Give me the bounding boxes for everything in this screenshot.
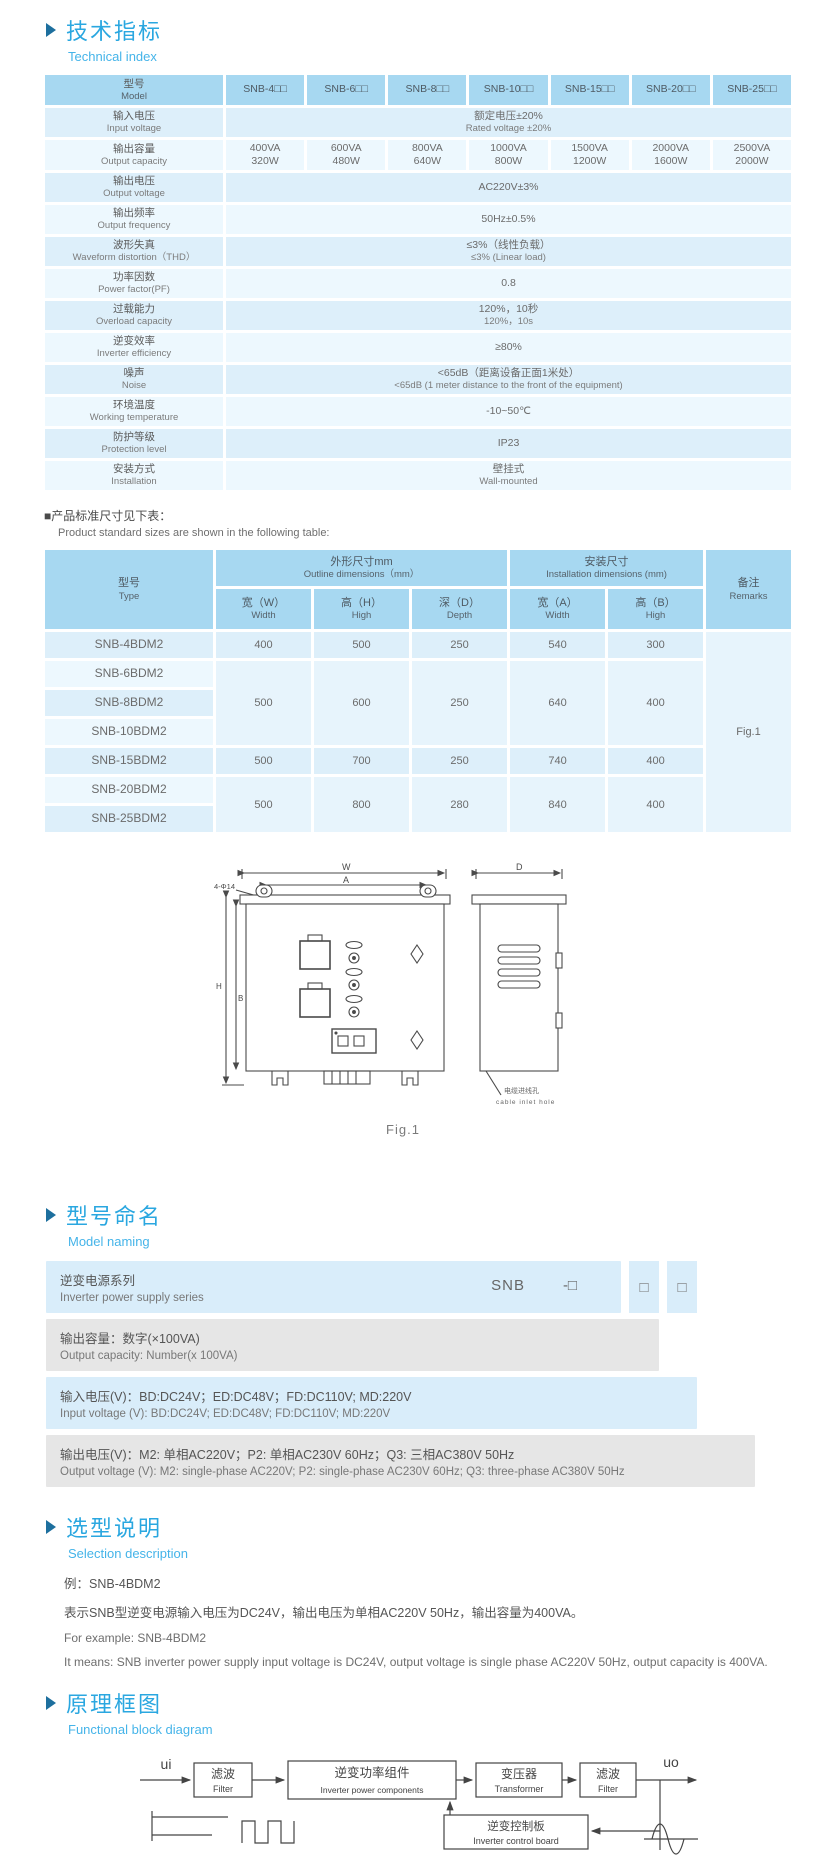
selection-meaning-en: It means: SNB inverter power supply inpu… [64,1655,830,1669]
spec-row: 输出频率Output frequency 50Hz±0.5% [45,205,791,234]
block-input-label: ui [161,1756,172,1772]
spec-row: 防护等级Protection level IP23 [45,429,791,458]
block5-label-zh: 逆变控制板 [487,1819,545,1833]
block4-label-en: Filter [598,1784,618,1794]
size-type-header: 型号Type [45,550,213,629]
model-code-box: □ [667,1261,697,1313]
model-column-header: SNB-4□□ [226,75,304,105]
model-column-header: SNB-6□□ [307,75,385,105]
section-arrow-icon [46,1696,56,1710]
dimension-figure-svg: W A 4-Φ14 H B D 电缆进线孔 cable inlet hole [214,861,592,1113]
spec-row: 过载能力Overload capacity 120%，10秒120%，10s [45,301,791,330]
spec-row: 逆变效率Inverter efficiency ≥80% [45,333,791,362]
spec-value: 1000VA800W [469,140,547,170]
cable-inlet-label-en: cable inlet hole [496,1099,555,1106]
spec-value: 50Hz±0.5% [226,205,791,234]
size-row: SNB-4BDM2 400 500 250 540 300 Fig.1 [45,632,791,658]
technical-spec-table: 型号Model SNB-4□□ SNB-6□□ SNB-8□□ SNB-10□□… [42,72,794,493]
dim-label-b: B [238,994,243,1003]
size-remark-cell: Fig.1 [706,632,791,832]
block1-label-zh: 滤波 [211,1767,235,1781]
spec-row: 功率因数Power factor(PF) 0.8 [45,269,791,298]
section-title: 原理框图 [66,1687,162,1719]
spec-value: 壁挂式Wall-mounted [226,461,791,490]
spec-value: 2500VA2000W [713,140,791,170]
spec-value: 1500VA1200W [551,140,629,170]
naming-band-series: 逆变电源系列 Inverter power supply series SNB … [46,1261,621,1313]
selection-meaning-zh: 表示SNB型逆变电源输入电压为DC24V，输出电压为单相AC220V 50Hz，… [64,1602,830,1621]
selection-example-en: For example: SNB-4BDM2 [64,1631,830,1645]
sizes-note-zh: ■产品标准尺寸见下表： [44,507,830,524]
sizes-note: ■产品标准尺寸见下表： Product standard sizes are s… [44,507,830,539]
block3-label-en: Transformer [495,1784,544,1794]
block5-label-en: Inverter control board [473,1836,559,1846]
naming-band-output-voltage: 输出电压(V)：M2: 单相AC220V；P2: 单相AC230V 60Hz；Q… [46,1435,755,1487]
spec-value: AC220V±3% [226,173,791,202]
spec-row: 输入电压Input voltage 额定电压±20%Rated voltage … [45,108,791,137]
cable-inlet-label-zh: 电缆进线孔 [504,1086,539,1095]
naming-band-input-voltage: 输入电压(V)：BD:DC24V；ED:DC48V；FD:DC110V; MD:… [46,1377,697,1429]
size-remarks-header: 备注Remarks [706,550,791,629]
block1-label-en: Filter [213,1784,233,1794]
spec-row: 噪声Noise <65dB（距离设备正面1米处）<65dB (1 meter d… [45,365,791,394]
section-title: 技术指标 [66,14,162,46]
block-diagram-svg: ui 滤波 Filter 逆变功率组件 Inverter power compo… [138,1751,700,1859]
spec-value: ≤3%（线性负载）≤3% (Linear load) [226,237,791,266]
sizes-note-en: Product standard sizes are shown in the … [58,527,830,539]
section-header-selection: 选型说明 Selection description [46,1511,830,1561]
section-subtitle: Functional block diagram [68,1722,830,1737]
size-sub-header: 宽（W）Width [216,589,311,629]
spec-value: 额定电压±20%Rated voltage ±20% [226,108,791,137]
section-arrow-icon [46,23,56,37]
model-column-header: SNB-20□□ [632,75,710,105]
section-title: 选型说明 [66,1511,162,1543]
dim-label-w: W [342,862,351,872]
size-row: SNB-15BDM2 500 700 250 740 400 [45,748,791,774]
block2-label-en: Inverter power components [321,1785,424,1795]
figure-caption: Fig.1 [214,1122,592,1137]
selection-text: 例：SNB-4BDM2 表示SNB型逆变电源输入电压为DC24V，输出电压为单相… [64,1573,830,1669]
selection-example-zh: 例：SNB-4BDM2 [64,1573,830,1592]
section-subtitle: Model naming [68,1234,830,1249]
size-sub-header: 高（B）High [608,589,703,629]
spec-value: 120%，10秒120%，10s [226,301,791,330]
section-arrow-icon [46,1208,56,1222]
model-naming-diagram: 逆变电源系列 Inverter power supply series SNB … [46,1261,755,1487]
section-header-block: 原理框图 Functional block diagram [46,1687,830,1737]
spec-header-model-label: 型号Model [45,75,223,105]
section-title: 型号命名 [66,1199,162,1231]
dimension-figure: W A 4-Φ14 H B D 电缆进线孔 cable inlet hole F… [214,861,592,1137]
dim-label-a: A [343,875,349,885]
size-table: 型号Type 外形尺寸mmOutline dimensions（mm） 安装尺寸… [42,547,794,835]
spec-header-row: 型号Model SNB-4□□ SNB-6□□ SNB-8□□ SNB-10□□… [45,75,791,105]
hole-callout-label: 4-Φ14 [214,882,235,891]
size-sub-header: 宽（A）Width [510,589,605,629]
size-row: SNB-20BDM2 500 800 280 840 400 [45,777,791,803]
spec-value: 600VA480W [307,140,385,170]
spec-value: 0.8 [226,269,791,298]
spec-value: IP23 [226,429,791,458]
datasheet-page: 技术指标 Technical index 型号Model SNB-4□□ SNB… [0,0,830,1864]
section-header-naming: 型号命名 Model naming [46,1199,830,1249]
spec-row: 环境温度Working temperature -10~50℃ [45,397,791,426]
block3-label-zh: 变压器 [501,1766,537,1781]
size-outline-header: 外形尺寸mmOutline dimensions（mm） [216,550,507,586]
dim-label-d: D [516,862,523,872]
dim-label-h: H [216,982,222,991]
section-subtitle: Selection description [68,1546,830,1561]
spec-row: 输出容量Output capacity 400VA320W 600VA480W … [45,140,791,170]
size-sub-header: 高（H）High [314,589,409,629]
size-row: SNB-6BDM2 500 600 250 640 400 [45,661,791,687]
model-column-header: SNB-10□□ [469,75,547,105]
section-subtitle: Technical index [68,49,830,64]
spec-value: -10~50℃ [226,397,791,426]
spec-value: 2000VA1600W [632,140,710,170]
spec-row: 安装方式Installation 壁挂式Wall-mounted [45,461,791,490]
model-column-header: SNB-8□□ [388,75,466,105]
section-header-technical: 技术指标 Technical index [46,14,830,64]
model-column-header: SNB-25□□ [713,75,791,105]
spec-row: 输出电压Output voltage AC220V±3% [45,173,791,202]
block4-label-zh: 滤波 [596,1767,620,1781]
size-header-row1: 型号Type 外形尺寸mmOutline dimensions（mm） 安装尺寸… [45,550,791,586]
model-column-header: SNB-15□□ [551,75,629,105]
naming-band-capacity: 输出容量：数字(×100VA) Output capacity: Number(… [46,1319,659,1371]
size-sub-header: 深（D）Depth [412,589,507,629]
model-code-box: □ [629,1261,659,1313]
size-install-header: 安装尺寸Installation dimensions (mm) [510,550,703,586]
spec-value: <65dB（距离设备正面1米处）<65dB (1 meter distance … [226,365,791,394]
spec-value: 800VA640W [388,140,466,170]
spec-value: ≥80% [226,333,791,362]
spec-value: 400VA320W [226,140,304,170]
block-output-label: uo [663,1754,679,1770]
model-code-prefix: SNB [491,1277,525,1294]
block2-label-zh: 逆变功率组件 [334,1765,409,1780]
section-arrow-icon [46,1520,56,1534]
spec-row: 波形失真Waveform distortion（THD） ≤3%（线性负载）≤3… [45,237,791,266]
model-code-dash-box: -□ [563,1277,577,1294]
